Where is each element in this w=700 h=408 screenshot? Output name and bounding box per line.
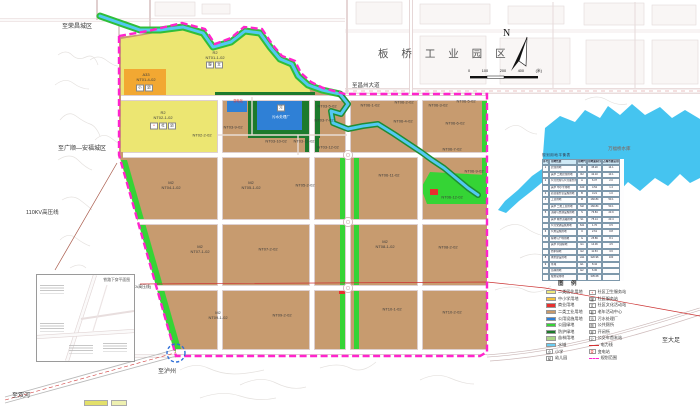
scale-bar — [470, 76, 538, 78]
legend: 图 例 二类居住用地中小学用地商业用地二类工业用地公用设施用地公园绿地防护绿地苗… — [546, 279, 658, 362]
parcel-label: NT03-12-02 — [317, 146, 338, 151]
parcel-label: M2 NT05-1-02 — [241, 181, 260, 191]
road-label-dazu: 至大足 — [662, 335, 680, 344]
planning-map-page: 至荣昌城区 板 桥 工 业 园 区 至昌州大道 至广顺—安福城区 110KV高压… — [0, 0, 700, 408]
legend-left-column: 二类居住用地中小学用地商业用地二类工业用地公用设施用地公园绿地防护绿地苗林用地水… — [546, 289, 583, 362]
road-label-changzhou: 至昌州大道 — [352, 81, 380, 89]
inset-note — [40, 285, 64, 294]
legend-title: 图 例 — [558, 279, 658, 287]
legend-item: 小小学 — [546, 348, 583, 355]
parcel-label: NT03-5-02 — [317, 105, 336, 110]
legend-item: 二类工业用地 — [546, 309, 583, 316]
facility-chip: 文 — [215, 62, 223, 69]
legend-item: 水域 — [546, 342, 583, 349]
inset-note — [103, 343, 127, 352]
road-label-luzhou: 至泸州 — [158, 366, 176, 375]
parcel-label: NT06-12-02 — [441, 196, 462, 201]
parcel-label: NT02-2-02 — [192, 134, 211, 139]
facility-chip: 社 — [159, 123, 167, 130]
parcel-label: NT03-10-02 — [265, 140, 286, 145]
north-label: N — [503, 28, 510, 39]
parcel-label: R2 NT01-1-02 — [205, 51, 224, 61]
legend-item: 厕公共厕所 — [589, 322, 627, 329]
legend-item: 商业用地 — [546, 302, 583, 309]
inset-title: 铁路下穿平面图 — [103, 278, 130, 283]
scale-tick: 0 — [468, 69, 470, 74]
scale-numbers: 0 100 200 400 (米) — [468, 69, 542, 74]
parcel-label: NT10-2-02 — [442, 311, 461, 316]
parcel-label: NT10-1-02 — [382, 308, 401, 313]
legend-item: 变变电站 — [589, 348, 627, 355]
parcel-label: M2 NT09-1-02 — [208, 311, 227, 321]
legend-item: 污污水处理厂 — [589, 315, 627, 322]
facility-chip: 幼 — [168, 123, 176, 130]
inset-note — [69, 345, 93, 354]
parcel-label: NT06-6-02 — [445, 122, 464, 127]
parcel-label: M2 NT04-1-02 — [161, 181, 180, 191]
legend-item: 公园绿地 — [546, 322, 583, 329]
road-label-guangshun: 至广顺—安福城区 — [58, 143, 106, 152]
landuse-table-title: 规划用地平衡表 — [542, 153, 624, 158]
parcel-label: 污水处理厂 — [272, 115, 290, 119]
parcel-label: NT06-3-02 — [428, 104, 447, 109]
parcel-label: NT06-5-02 — [456, 100, 475, 105]
parcel-label: NT09-2-02 — [272, 314, 291, 319]
facility-chip: 幼 — [145, 85, 153, 92]
parcel-label: NT03-11-02 — [293, 140, 314, 145]
underpass-inset-plan: 铁路下穿平面图 — [36, 274, 135, 362]
legend-item: 公公交车首末站 — [589, 335, 627, 342]
cutoff-swatch — [84, 400, 108, 406]
parcel-label: NT06-9-02 — [464, 170, 483, 175]
legend-item: 二类居住用地 — [546, 289, 583, 296]
legend-item: 公用设施用地 — [546, 315, 583, 322]
parcel-label: A33 NT01-4-02 — [136, 73, 155, 83]
region-title: 板 桥 工 业 园 区 — [378, 46, 511, 61]
powerline-label: 110KV高压线 — [26, 208, 59, 216]
scale-tick: 200 — [500, 69, 506, 74]
parcel-label: NT03-9-02 — [223, 126, 242, 131]
landuse-table-rows: 序号用地性质用地代码用地面积(公顷)占城市建设用地比例(%)1居住用地R45.2… — [542, 159, 624, 281]
landuse-table: 规划用地平衡表 序号用地性质用地代码用地面积(公顷)占城市建设用地比例(%)1居… — [542, 153, 624, 281]
parcel-label: NT08-2-02 — [438, 246, 457, 251]
inset-note — [40, 323, 64, 332]
legend-item: 文社区文化活动站 — [589, 302, 627, 309]
legend-item: 幼幼儿园 — [546, 355, 583, 362]
cutoff-swatch — [111, 400, 127, 406]
parcel-label: NT05-2-02 — [295, 184, 314, 189]
parcel-label: NT06-7-02 — [442, 148, 461, 153]
parcel-label: NT07-2-02 — [258, 248, 277, 253]
legend-item: +社区卫生服务站 — [589, 289, 627, 296]
legend-item: 规划范围 — [589, 355, 627, 362]
road-label-rongchang: 至荣昌城区 — [62, 21, 92, 30]
road-label-shuanghe: 至双河 — [12, 390, 30, 399]
legend-item: 苗林用地 — [546, 335, 583, 342]
reservoir-label: 万福桥水库 — [608, 146, 631, 152]
scale-unit: (米) — [536, 69, 542, 74]
facility-chip: 服 — [206, 62, 214, 69]
legend-item: 电力线 — [589, 342, 627, 349]
parcel-label: NT06-1-02 — [360, 104, 379, 109]
parcel-label: NT06-4-02 — [393, 120, 412, 125]
parcel-label: 变电站 — [233, 100, 243, 104]
facility-chip: 污 — [277, 105, 285, 112]
scale-tick: 400 — [518, 69, 524, 74]
parcel-label: M2 NT08-1-02 — [375, 240, 394, 250]
parcel-label: NT03-7-02 — [314, 119, 333, 124]
facility-chip: 小 — [136, 85, 144, 92]
parcel-label: NT06-2-02 — [394, 101, 413, 106]
parcel-label: NT06-11-02 — [378, 174, 399, 179]
legend-item: 老老年活动中心 — [589, 309, 627, 316]
parcel-label: M2 NT07-1-02 — [190, 245, 209, 255]
facility-chip: + — [150, 123, 158, 130]
parcel-label: R2 NT02-1-02 — [153, 111, 172, 121]
legend-right-column: +社区卫生服务站服社区服务站文社区文化活动站老老年活动中心污污水处理厂厕公共厕所… — [589, 289, 627, 362]
scale-tick: 100 — [482, 69, 488, 74]
